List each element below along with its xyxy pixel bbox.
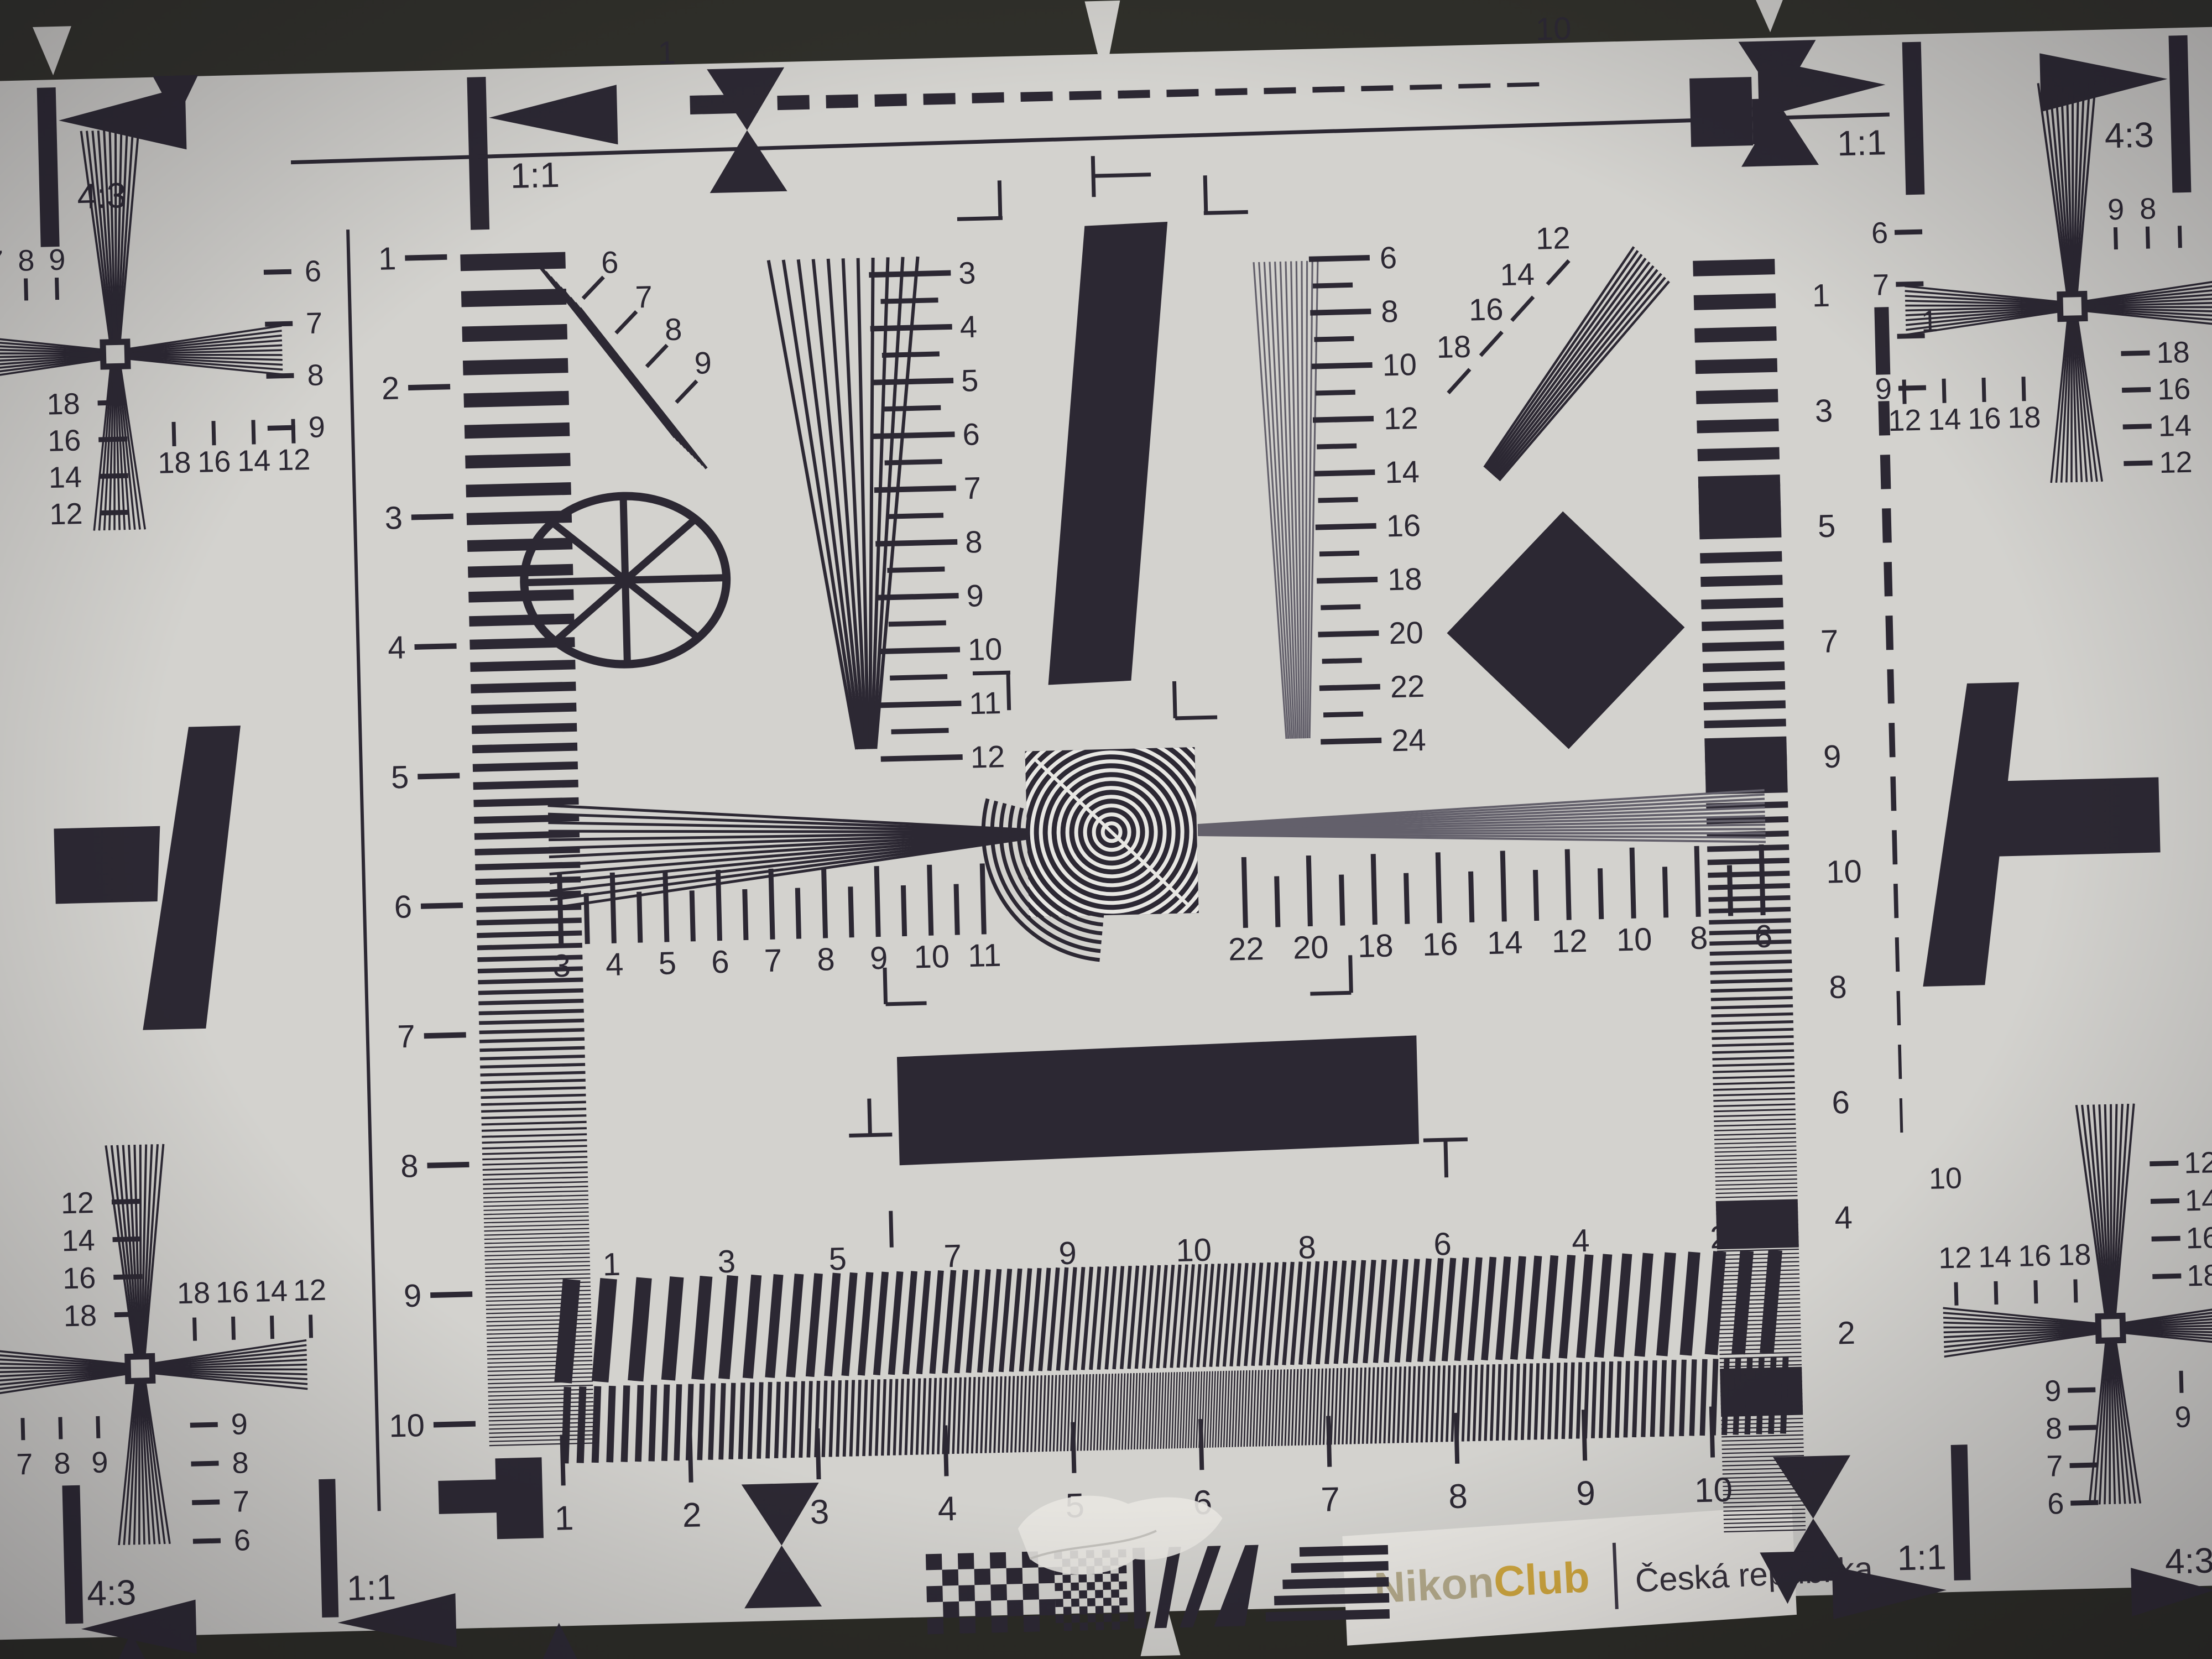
photo-frame: 4:3 1:1 1:1 4:3 4:3 1:1 1:1 4:3 1 10 1 1… <box>0 0 2212 1659</box>
photo-vignette <box>0 0 2212 1659</box>
test-chart: 4:3 1:1 1:1 4:3 4:3 1:1 1:1 4:3 1 10 1 1… <box>0 0 2212 1659</box>
